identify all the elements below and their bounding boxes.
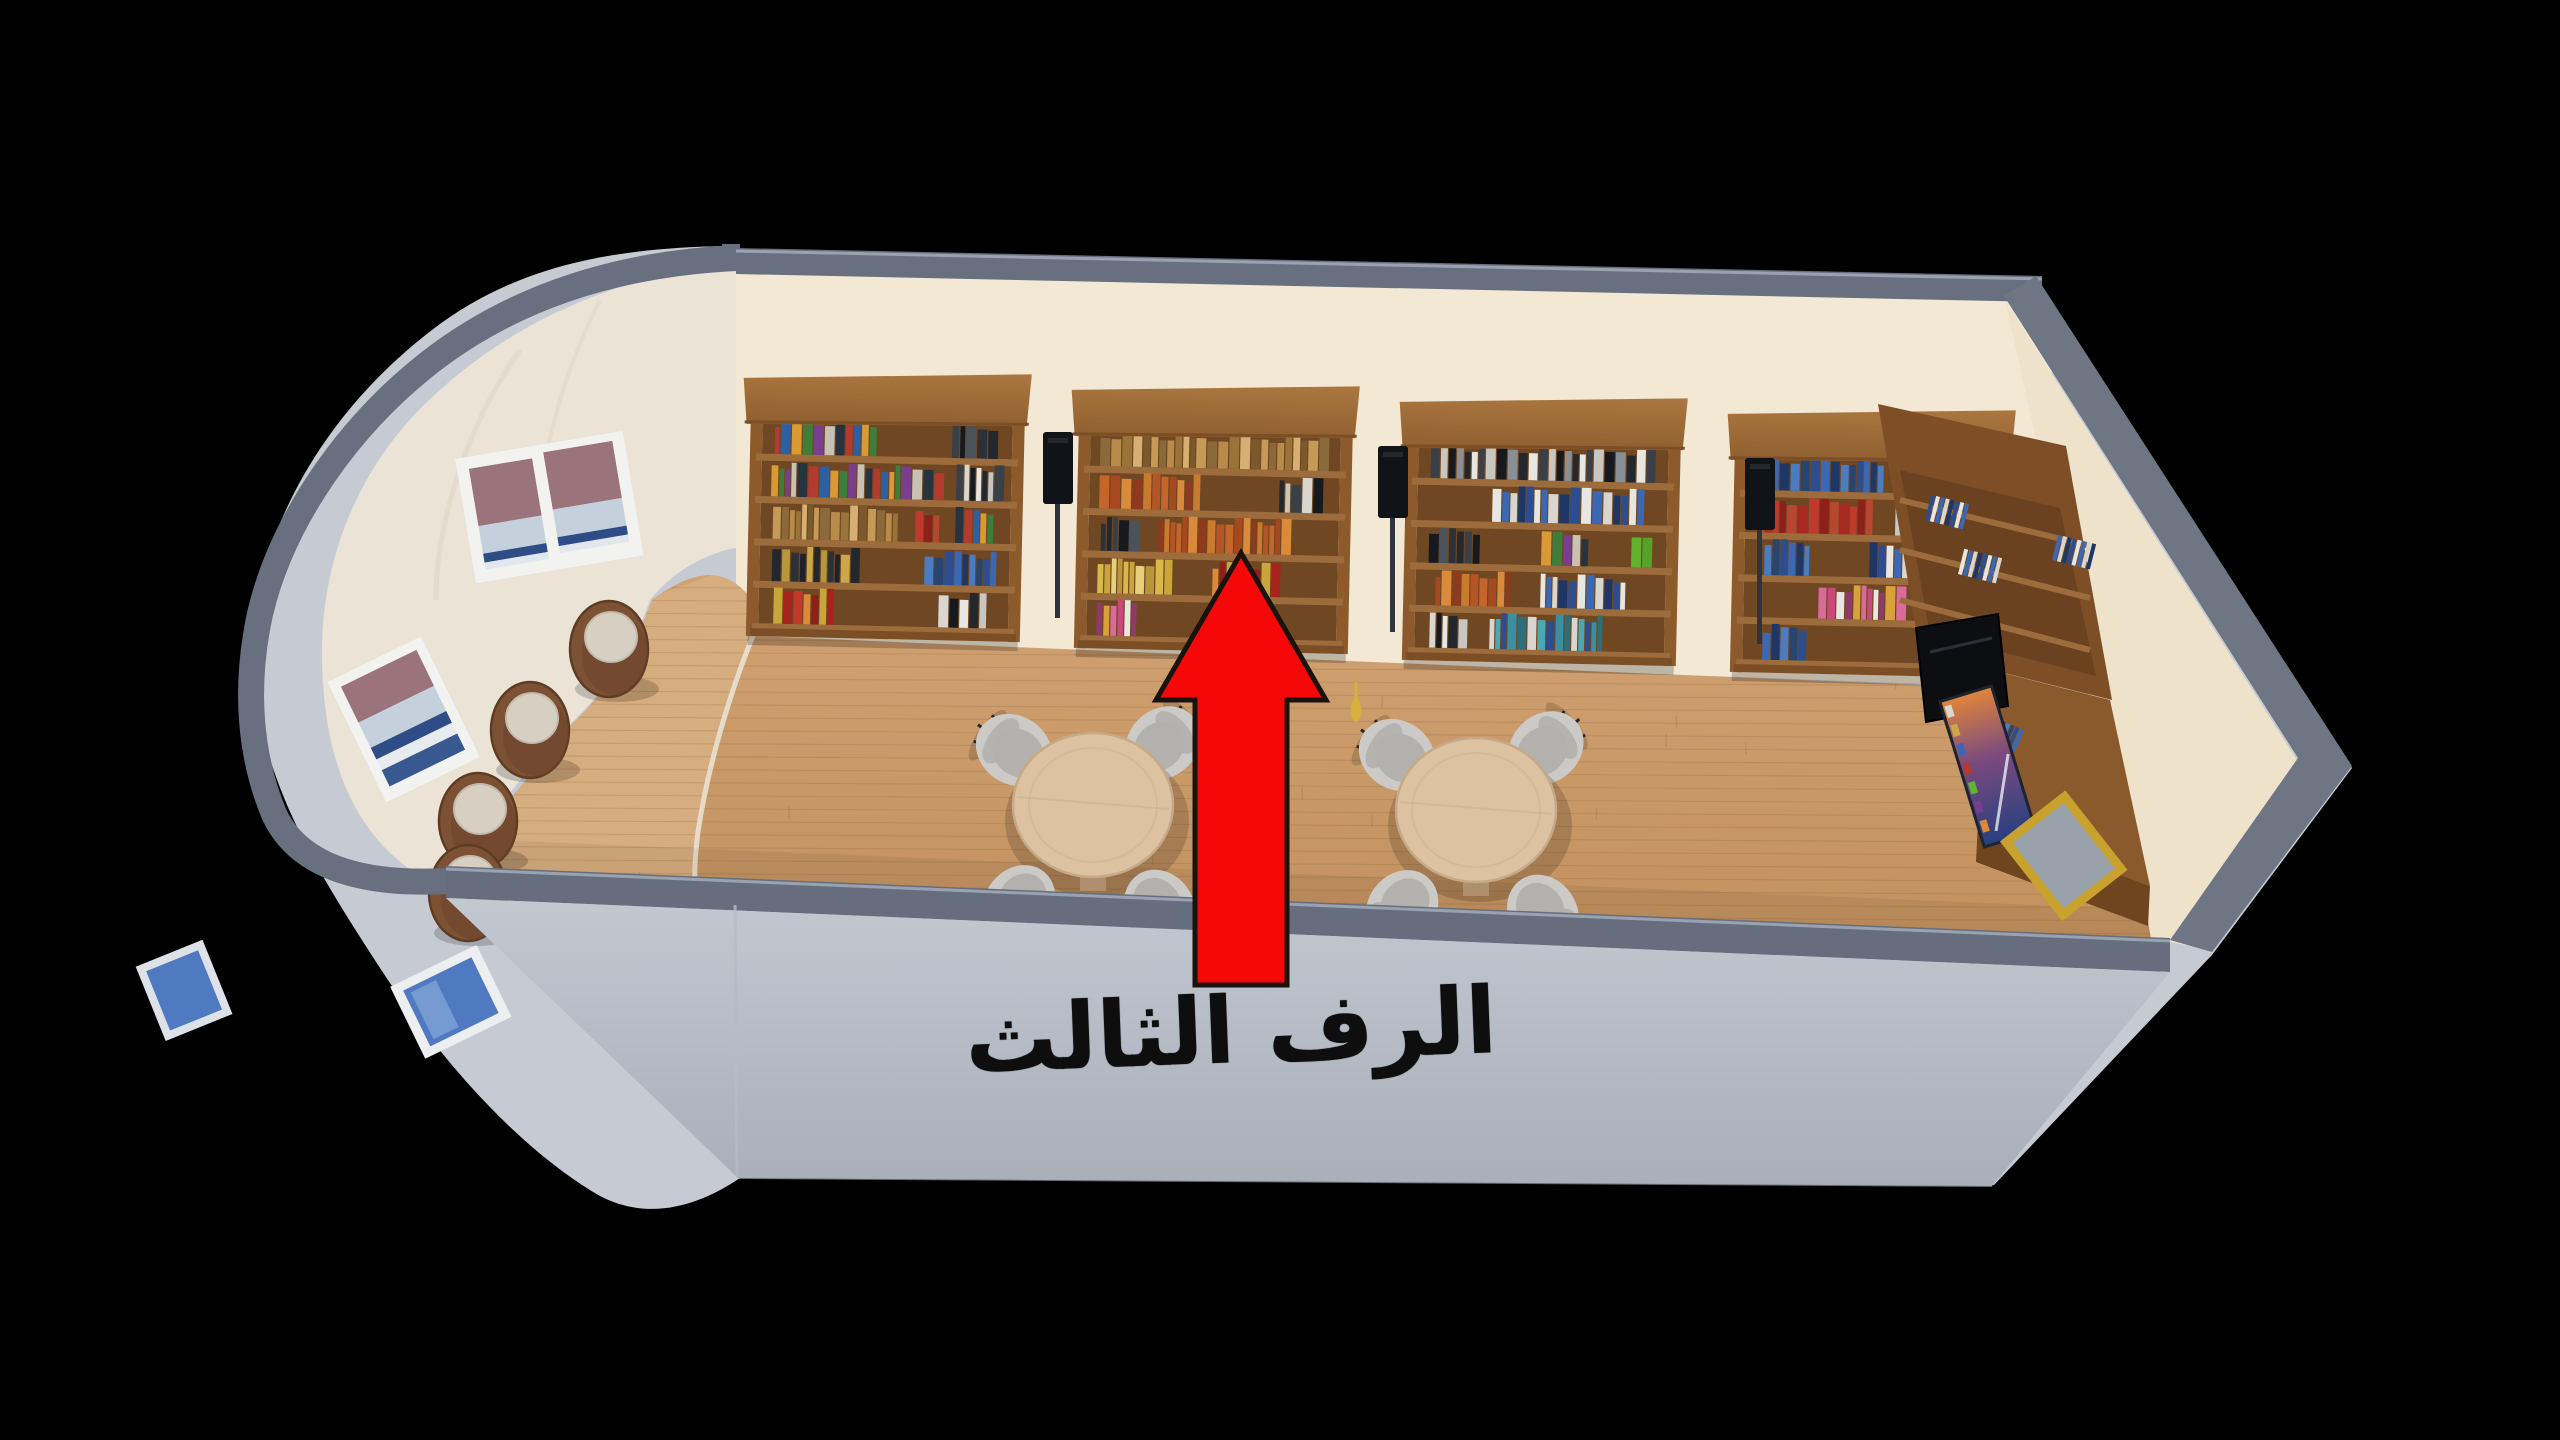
book-spine <box>893 513 898 541</box>
book-spine <box>1579 454 1585 481</box>
book-spine <box>1190 438 1195 468</box>
book-spine <box>977 430 987 459</box>
book-spine <box>1861 586 1867 620</box>
book-spine <box>1762 633 1770 660</box>
book-spine <box>1251 521 1257 554</box>
book-spine <box>1537 620 1545 650</box>
book-spine <box>1479 578 1487 606</box>
library-room-3d-scene <box>0 0 2560 1440</box>
book-spine <box>1457 531 1465 563</box>
library-room-render: الرف الثالث <box>0 0 2560 1440</box>
book-spine <box>1548 447 1556 481</box>
book-spine <box>1502 492 1509 522</box>
book-spine <box>1167 440 1174 467</box>
book-spine <box>944 551 954 585</box>
book-spine <box>934 558 943 585</box>
book-spine <box>779 468 784 496</box>
book-spine <box>1546 577 1552 608</box>
book-spine <box>1151 437 1158 467</box>
book-spine <box>1435 577 1440 605</box>
book-spine <box>1518 453 1527 480</box>
book-spine <box>1216 524 1224 553</box>
book-spine <box>1301 440 1307 470</box>
book-spine <box>1103 606 1109 636</box>
book-spine <box>814 547 821 582</box>
book-spine <box>790 510 795 539</box>
book-spine <box>1117 600 1124 636</box>
book-spine <box>938 595 949 627</box>
book-spine <box>803 594 810 624</box>
book-spine <box>1143 436 1151 467</box>
book-spine <box>983 559 989 586</box>
book-spine <box>1528 453 1537 480</box>
book-spine <box>969 555 976 586</box>
book-spine <box>980 513 986 543</box>
book-spine <box>1808 498 1819 533</box>
book-spine <box>1182 517 1188 553</box>
book-spine <box>1540 574 1546 608</box>
book-spine <box>861 423 869 456</box>
book-spine <box>1111 439 1121 466</box>
book-spine <box>1177 480 1184 510</box>
book-spine <box>1556 451 1563 481</box>
book-spine <box>1471 452 1477 479</box>
book-spine <box>969 593 979 628</box>
book-spine <box>1631 537 1641 567</box>
book-spine <box>824 426 834 455</box>
book-spine <box>1804 546 1809 576</box>
book-spine <box>987 515 993 544</box>
book-spine <box>1790 464 1799 491</box>
book-spine <box>1613 582 1619 609</box>
book-spine <box>1293 437 1301 470</box>
book-spine <box>1176 523 1181 552</box>
book-spine <box>1275 519 1281 555</box>
book-spine <box>1764 545 1771 575</box>
book-spine <box>1198 520 1207 553</box>
book-spine <box>1132 479 1142 509</box>
book-spine <box>1430 444 1440 478</box>
book-spine <box>973 510 980 543</box>
book-spine <box>1122 432 1133 466</box>
book-spine <box>1121 479 1131 509</box>
book-spine <box>819 589 827 625</box>
book-spine <box>1496 448 1507 479</box>
book-spine <box>1478 445 1485 479</box>
book-spine <box>1779 501 1786 533</box>
book-spine <box>827 589 834 625</box>
book-spine <box>1501 613 1507 649</box>
book-spine <box>1581 488 1592 524</box>
book-spine <box>901 466 912 499</box>
book-spine <box>791 463 797 497</box>
book-spine <box>1869 542 1878 577</box>
book-spine <box>1527 617 1537 650</box>
book-spine <box>1452 571 1461 606</box>
book-spine <box>1119 520 1130 551</box>
book-spine <box>868 509 877 541</box>
book-spine <box>1133 433 1143 467</box>
book-spine <box>1104 564 1110 593</box>
book-spine <box>1456 448 1464 479</box>
book-spine <box>1592 491 1603 524</box>
book-spine <box>1458 619 1467 648</box>
book-spine <box>1585 622 1590 651</box>
book-spine <box>1620 582 1625 609</box>
book-spine <box>851 548 861 583</box>
book-spine <box>820 508 831 540</box>
book-spine <box>915 511 924 542</box>
book-spine <box>1886 546 1894 578</box>
book-spine <box>1279 480 1285 512</box>
book-spine <box>933 515 939 542</box>
book-spine <box>1581 539 1588 566</box>
book-spine <box>1771 624 1780 660</box>
book-spine <box>841 555 850 583</box>
book-spine <box>994 465 1005 501</box>
book-spine <box>1853 585 1861 619</box>
book-spine <box>960 426 966 458</box>
book-spine <box>1130 520 1141 551</box>
book-spine <box>1564 615 1571 651</box>
book-spine <box>1193 474 1201 510</box>
book-spine <box>962 554 969 585</box>
book-spine <box>1170 522 1175 552</box>
book-spine <box>886 513 892 541</box>
book-spine <box>1313 478 1324 513</box>
book-spine <box>807 547 814 582</box>
book-spine <box>1870 462 1876 492</box>
book-spine <box>1517 617 1527 650</box>
book-spine <box>853 423 861 456</box>
book-spine <box>990 552 997 586</box>
book-spine <box>1827 588 1836 619</box>
book-spine <box>800 554 806 582</box>
book-spine <box>1097 564 1103 593</box>
book-spine <box>1885 586 1896 620</box>
book-spine <box>1558 580 1567 608</box>
book-spine <box>955 507 964 543</box>
book-spine <box>797 463 808 497</box>
book-spine <box>1559 494 1569 523</box>
book-spine <box>1849 465 1855 492</box>
book-spine <box>1131 603 1137 636</box>
book-spine <box>1449 528 1457 563</box>
book-spine <box>1642 538 1652 568</box>
book-spine <box>1800 457 1810 491</box>
book-spine <box>782 549 791 581</box>
book-spine <box>1225 525 1233 554</box>
book-spine <box>1597 615 1603 651</box>
book-spine <box>1495 619 1500 649</box>
book-spine <box>1636 447 1646 483</box>
book-spine <box>1839 503 1849 534</box>
book-spine <box>1534 490 1541 523</box>
book-spine <box>1175 434 1183 468</box>
book-spine <box>1099 475 1110 508</box>
book-spine <box>1492 489 1502 522</box>
book-spine <box>1436 613 1442 648</box>
book-spine <box>773 588 783 624</box>
book-spine <box>771 465 779 496</box>
book-spine <box>966 426 977 458</box>
book-spine <box>773 507 782 539</box>
book-spine <box>1448 447 1456 478</box>
book-spine <box>821 550 828 582</box>
book-spine <box>1429 613 1436 648</box>
book-spine <box>1429 534 1439 563</box>
book-spine <box>1568 581 1576 608</box>
book-spine <box>1621 496 1628 525</box>
book-spine <box>1878 545 1886 577</box>
book-spine <box>802 422 813 455</box>
book-spine <box>857 464 865 498</box>
book-spine <box>1101 524 1106 551</box>
book-spine <box>1196 438 1206 468</box>
book-spine <box>831 512 840 540</box>
book-spine <box>1261 440 1268 470</box>
book-spine <box>1488 578 1496 606</box>
book-spine <box>1546 621 1554 650</box>
book-spine <box>1143 473 1152 509</box>
book-spine <box>1096 602 1103 635</box>
book-spine <box>1207 441 1217 468</box>
book-spine <box>1894 549 1901 578</box>
book-spine <box>1552 532 1563 566</box>
book-spine <box>808 505 814 540</box>
book-spine <box>1111 558 1117 593</box>
book-spine <box>1285 483 1290 512</box>
book-spine <box>1123 562 1129 594</box>
book-spine <box>1819 499 1829 534</box>
book-spine <box>1507 613 1517 649</box>
book-spine <box>774 427 779 454</box>
book-spine <box>865 468 872 498</box>
book-spine <box>772 549 782 581</box>
book-spine <box>808 466 819 497</box>
book-spine <box>1251 439 1260 469</box>
book-spine <box>889 472 894 499</box>
book-spine <box>1788 542 1796 575</box>
book-spine <box>1505 572 1511 607</box>
book-spine <box>791 421 802 454</box>
book-spine <box>1526 487 1534 523</box>
book-spine <box>1263 525 1268 554</box>
book-spine <box>1158 519 1164 552</box>
book-spine <box>1629 489 1637 525</box>
book-spine <box>1107 517 1113 551</box>
book-spine <box>1277 443 1284 470</box>
book-spine <box>1772 539 1780 575</box>
book-spine <box>1849 506 1856 534</box>
book-spine <box>1604 579 1612 609</box>
book-spine <box>895 465 901 499</box>
book-spine <box>1586 447 1593 481</box>
book-spine <box>839 471 847 498</box>
book-spine <box>1461 574 1470 606</box>
book-spine <box>1877 466 1883 493</box>
book-spine <box>1440 528 1449 563</box>
book-spine <box>1271 563 1281 597</box>
book-spine <box>1218 442 1228 469</box>
book-spine <box>1563 535 1572 566</box>
book-spine <box>1780 539 1788 575</box>
book-spine <box>1829 502 1839 534</box>
book-spine <box>1308 441 1318 471</box>
book-spine <box>954 551 962 585</box>
book-spine <box>1818 588 1827 619</box>
book-spine <box>1865 500 1873 535</box>
book-spine <box>1497 572 1505 607</box>
book-spine <box>1243 518 1251 554</box>
book-spine <box>791 553 799 582</box>
book-spine <box>1164 519 1170 552</box>
book-spine <box>1442 616 1448 648</box>
book-spine <box>1110 476 1121 509</box>
book-spine <box>1465 532 1473 564</box>
book-spine <box>1448 616 1458 648</box>
book-spine <box>848 464 857 498</box>
book-spine <box>1577 575 1586 609</box>
book-spine <box>1798 630 1806 660</box>
book-spine <box>1572 535 1581 566</box>
book-spine <box>850 505 859 540</box>
book-spine <box>1548 494 1558 523</box>
book-spine <box>1555 614 1564 650</box>
book-spine <box>976 559 982 586</box>
book-spine <box>988 431 998 459</box>
book-spine <box>1541 531 1552 565</box>
book-spine <box>1485 445 1496 479</box>
book-spine <box>1291 485 1301 513</box>
book-spine <box>1269 443 1276 470</box>
book-spine <box>1538 446 1548 480</box>
book-spine <box>881 472 888 499</box>
book-spine <box>835 555 840 583</box>
book-spine <box>949 599 958 628</box>
book-spine <box>811 595 818 624</box>
book-spine <box>1164 560 1173 595</box>
book-spine <box>1780 627 1789 660</box>
book-spine <box>785 470 790 497</box>
book-spine <box>959 600 968 628</box>
book-spine <box>1586 575 1595 609</box>
book-spine <box>1152 473 1161 509</box>
book-spine <box>1169 477 1177 510</box>
book-spine <box>1269 526 1274 555</box>
exterior-window-far <box>136 940 233 1041</box>
book-spine <box>1319 435 1330 471</box>
book-spine <box>924 515 932 542</box>
book-spine <box>988 472 993 501</box>
book-spine <box>1840 465 1848 492</box>
book-spine <box>869 427 876 456</box>
book-spine <box>1161 477 1169 510</box>
wall-seam <box>735 905 737 1176</box>
book-spine <box>1185 481 1192 510</box>
book-spine <box>1229 435 1240 469</box>
book-spine <box>924 557 933 585</box>
book-spine <box>1110 606 1116 636</box>
book-spine <box>1786 505 1796 533</box>
book-spine <box>1100 438 1110 466</box>
book-spine <box>830 471 838 498</box>
book-spine <box>1570 488 1581 524</box>
book-spine <box>964 510 973 543</box>
book-spine <box>1845 592 1852 619</box>
book-spine <box>1507 450 1517 480</box>
book-spine <box>982 471 987 501</box>
book-spine <box>1796 543 1804 576</box>
book-spine <box>1797 505 1807 533</box>
book-spine <box>1113 517 1119 551</box>
book-spine <box>1604 452 1614 482</box>
book-spine <box>1240 436 1251 469</box>
book-spine <box>1510 493 1517 522</box>
book-spine <box>1124 600 1131 636</box>
book-spine <box>1879 593 1884 620</box>
book-spine <box>783 591 793 624</box>
book-spine <box>1464 452 1470 479</box>
book-spine <box>1117 559 1123 594</box>
book-spine <box>1603 492 1613 524</box>
book-spine <box>1159 440 1166 467</box>
book-spine <box>956 464 964 500</box>
book-spine <box>976 468 982 501</box>
book-spine <box>1595 578 1604 609</box>
book-spine <box>819 466 830 497</box>
shelf-label-text: الرف الثالث <box>963 975 1498 1087</box>
book-spine <box>1836 592 1844 619</box>
book-spine <box>1135 566 1144 594</box>
book-spine <box>1207 520 1216 553</box>
book-spine <box>970 468 976 501</box>
book-spine <box>1188 517 1198 553</box>
book-spine <box>1571 618 1578 651</box>
book-spine <box>1129 562 1135 594</box>
book-spine <box>1856 458 1863 492</box>
book-spine <box>1830 462 1839 492</box>
book-spine <box>1234 518 1243 554</box>
book-spine <box>796 511 801 539</box>
book-spine <box>1593 449 1604 482</box>
book-spine <box>1285 437 1293 470</box>
book-spine <box>1564 451 1571 481</box>
bookshelf-unit <box>738 368 1032 651</box>
book-spine <box>873 469 880 499</box>
book-spine <box>1440 444 1448 478</box>
book-spine <box>1552 577 1558 608</box>
book-spine <box>1302 478 1313 513</box>
book-spine <box>1441 570 1452 605</box>
book-spine <box>934 473 944 500</box>
book-spine <box>859 506 868 541</box>
book-spine <box>814 508 820 540</box>
book-spine <box>1281 519 1292 555</box>
book-spine <box>1470 574 1479 606</box>
book-spine <box>1626 455 1635 482</box>
book-spine <box>952 423 960 458</box>
book-spine <box>877 510 886 541</box>
book-spine <box>1145 566 1154 594</box>
book-spine <box>835 419 845 455</box>
book-spine <box>1541 490 1548 523</box>
book-spine <box>1820 460 1830 491</box>
book-spine <box>1473 535 1480 564</box>
book-spine <box>1615 452 1625 482</box>
book-spine <box>1867 589 1873 620</box>
book-spine <box>828 551 835 582</box>
